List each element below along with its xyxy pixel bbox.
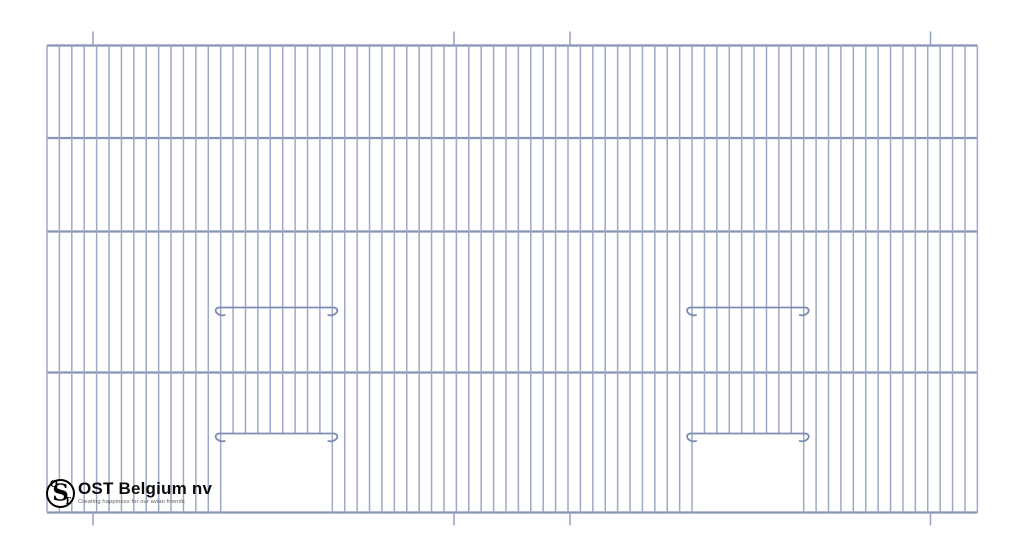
brand-text-block: OST Belgium nv Creating happiness for ou… — [78, 479, 212, 505]
cage-front-drawing: O S T OST Belgium nv Creating happiness … — [0, 0, 1024, 559]
brand-name: OST Belgium nv — [78, 480, 212, 497]
wire-grid-svg — [0, 0, 1024, 559]
brand-logo: O S T OST Belgium nv Creating happiness … — [46, 479, 212, 508]
brand-monogram-circle: O S T — [46, 479, 75, 508]
monogram-letter-t: T — [64, 497, 71, 507]
brand-tagline: Creating happiness for our avian friends — [78, 499, 212, 505]
